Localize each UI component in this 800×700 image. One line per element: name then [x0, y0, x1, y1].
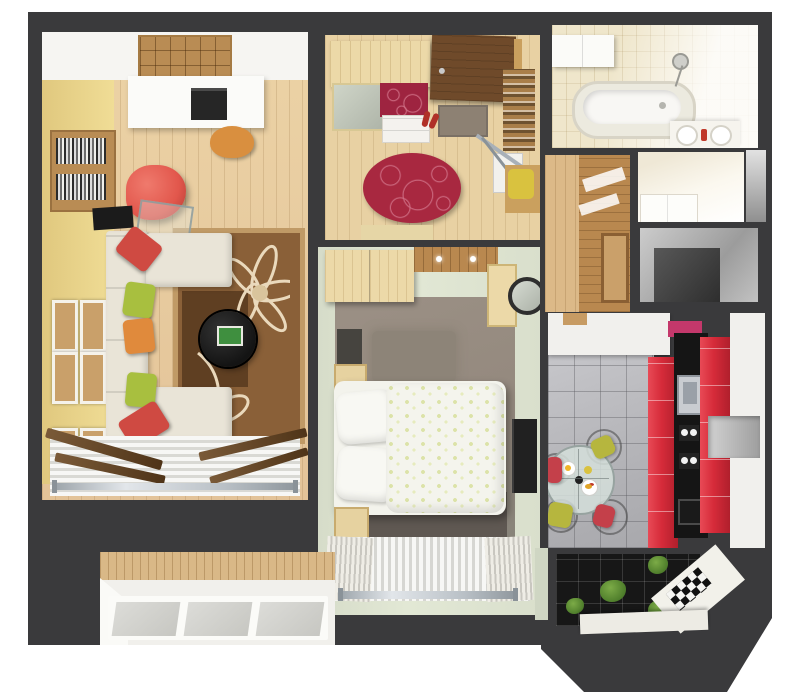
spotlight: [436, 256, 442, 262]
room-kitchen: [548, 313, 765, 548]
red-towel: [701, 129, 707, 141]
plant: [648, 556, 668, 574]
hob: [679, 453, 699, 469]
white-slat: [582, 167, 626, 192]
orange-pillow: [122, 318, 155, 355]
room-bedroom: [318, 247, 540, 615]
picture-frame: [80, 352, 106, 404]
outer-wall-face: [746, 150, 766, 222]
wardrobe-maroon-panel: [380, 83, 428, 117]
duvet: [386, 383, 504, 513]
green-book: [217, 326, 243, 346]
coffee-table: [200, 311, 256, 367]
bookshelf: [50, 130, 116, 212]
red-chair-cushion: [548, 457, 562, 483]
balcony-wood-wall: [100, 552, 335, 582]
radiator-cap: [338, 588, 343, 601]
radiator: [52, 483, 298, 490]
balcony-windows: [108, 596, 328, 640]
slatted-ceiling: [414, 247, 498, 272]
floorplan-render: [0, 0, 800, 700]
hall-shelf-cabinet: [503, 69, 535, 151]
round-mirror: [508, 277, 540, 315]
toilet-fixtures: [640, 194, 698, 222]
sink-basin: [710, 125, 732, 146]
room-kitchen-bay: [552, 548, 722, 640]
black-saucer: [575, 476, 583, 484]
dark-dresser: [337, 329, 362, 365]
picture-frame: [52, 352, 78, 404]
green-chair-cushion: [548, 501, 574, 529]
radiator-cap: [293, 480, 298, 493]
framed-picture: [601, 233, 629, 303]
book-row: [56, 138, 106, 164]
hall-bench: [505, 165, 540, 213]
bathroom-cabinet: [552, 35, 614, 67]
bedroom-wardrobe: [325, 250, 414, 302]
printer: [191, 88, 227, 120]
yellow-cup: [584, 466, 592, 474]
doormat: [438, 105, 488, 137]
green-pillow: [122, 281, 156, 319]
room-hallway: [325, 35, 540, 240]
double-bed: [334, 381, 506, 515]
wardrobe-mirror: [332, 83, 386, 131]
room-bathroom: [552, 25, 758, 148]
bathtub-drain: [659, 102, 666, 109]
bay-window-sill: [580, 610, 709, 634]
wood-trim: [563, 313, 587, 325]
room-corridor: [545, 155, 630, 312]
white-slat: [578, 193, 619, 216]
open-niche: [708, 416, 760, 458]
hob: [679, 425, 699, 441]
window-pane: [256, 602, 325, 636]
spotlight: [470, 256, 476, 262]
double-sink: [670, 121, 740, 147]
room-living: [42, 32, 308, 500]
low-bench: [361, 225, 433, 240]
fluffy-rug: [372, 331, 456, 382]
desk-chair: [210, 126, 254, 158]
window-pane: [184, 602, 253, 636]
sink-basin: [676, 125, 698, 146]
storage-floor: [654, 248, 720, 302]
radiator: [338, 591, 518, 599]
plant: [600, 580, 626, 602]
door-handle: [439, 68, 445, 74]
plant: [566, 598, 584, 614]
tv-console: [92, 206, 133, 231]
radiator-cap: [52, 480, 57, 493]
radiator-cap: [513, 588, 518, 601]
room-balcony: [100, 552, 335, 645]
room-storage: [640, 228, 758, 302]
plate-with-egg: [561, 461, 576, 476]
yellow-cushion: [508, 169, 534, 199]
bathtub-basin: [583, 90, 681, 124]
book-row: [56, 174, 106, 200]
living-window-blinds: [50, 436, 300, 496]
picture-frame: [80, 300, 106, 352]
picture-frame: [52, 300, 78, 352]
bedroom-wall-face: [535, 548, 548, 620]
wall-tv: [512, 419, 537, 493]
wardrobe: [330, 41, 430, 87]
oval-red-rug: [363, 153, 461, 223]
window-pane: [112, 602, 181, 636]
room-toilet: [638, 152, 744, 222]
sofa-chaise-top: [146, 233, 232, 287]
plate-with-food: [581, 479, 598, 496]
